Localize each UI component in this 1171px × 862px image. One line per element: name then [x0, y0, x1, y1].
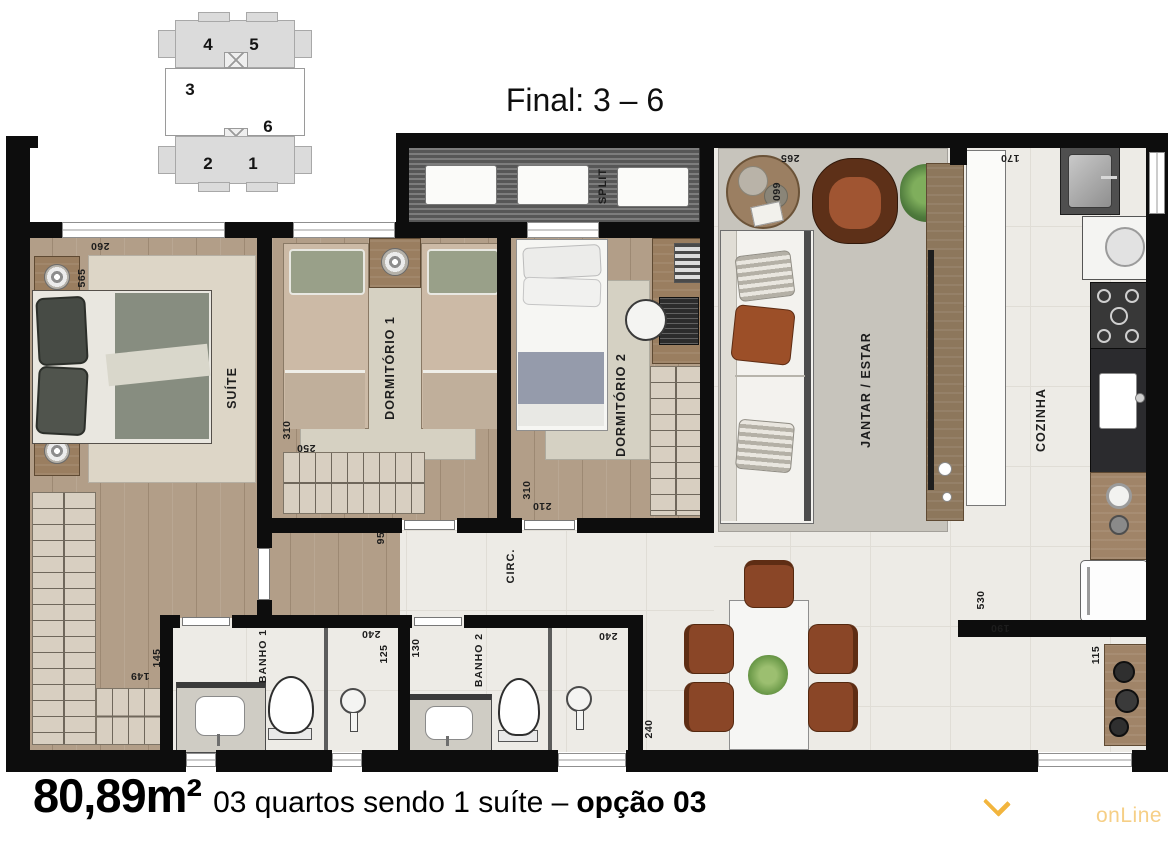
dorm2-wardrobe	[650, 366, 702, 516]
burner-2	[1125, 289, 1139, 303]
tv-vase-2	[942, 492, 952, 502]
door-dorm1	[404, 520, 455, 530]
label-banho2: BANHO 2	[473, 633, 485, 687]
wall-bedrooms-bottom-c	[577, 518, 714, 533]
window-vent-2	[332, 753, 362, 767]
dim-dining-width: 240	[643, 719, 655, 738]
banho2-toilet	[496, 678, 538, 740]
wall-top-right-outer	[710, 133, 1168, 148]
dorm1-bed-right-pillow	[427, 249, 499, 295]
window-dorm2	[527, 222, 599, 238]
dorm1-bed-right-blanket	[423, 370, 499, 429]
suite-closet-vertical	[32, 492, 96, 745]
sofa-seam	[735, 375, 805, 377]
door-banho1	[182, 617, 230, 626]
dining-chair-right-1	[808, 624, 858, 674]
dim-kitchen-width: 170	[1000, 152, 1019, 164]
burner-4	[1125, 329, 1139, 343]
door-banho2	[414, 617, 462, 626]
wall-living-kitchen-stub	[950, 133, 967, 165]
label-circ: CIRC.	[505, 549, 517, 584]
dim-dorm2-width: 210	[532, 500, 551, 512]
armchair-seat	[829, 177, 881, 229]
kitchen-faucet	[1135, 393, 1145, 403]
kitchen-counter-left	[966, 150, 1006, 506]
fridge-handle	[1087, 567, 1090, 615]
banho2-basin	[425, 706, 473, 740]
wall-suite-hall-a	[257, 532, 272, 548]
wall-split-top	[396, 133, 712, 148]
burner-3	[1097, 329, 1111, 343]
dorm1-lamp	[381, 248, 409, 276]
label-dorm2: DORMITÓRIO 2	[614, 353, 628, 457]
tank-faucet	[1101, 176, 1117, 179]
wall-banho-top-c	[464, 615, 640, 628]
coffee-counter	[1104, 644, 1148, 746]
dim-living-width: 265	[780, 152, 799, 164]
banho2-shower-partition	[548, 628, 552, 750]
ac-condenser-3	[617, 167, 689, 207]
dining-chair-left-1	[684, 624, 734, 674]
dorm1-bed-right	[421, 243, 503, 429]
wall-suite-dorm1	[257, 222, 272, 532]
floor-plan: SUÍTE DORMITÓRIO 1 DORMITÓRIO 2 SPLIT JA…	[0, 0, 1171, 862]
banho1-shower-stem	[350, 712, 358, 732]
floorplan-page: 4 5 3 6 2 1 Final: 3 – 6	[0, 0, 1171, 862]
wall-bedrooms-top-c	[599, 222, 714, 238]
window-vent-1	[186, 753, 216, 767]
dim-dorm1-width: 250	[296, 442, 315, 454]
laundry-tank	[1060, 147, 1120, 215]
dim-suite-depth: 565	[76, 268, 88, 287]
wall-topleft-corner	[6, 136, 38, 148]
tv-screen	[928, 250, 934, 490]
dim-banho1-width: 125	[378, 644, 390, 663]
dim-closet-b: 145	[151, 648, 163, 667]
cabinet-faucet	[1109, 515, 1129, 535]
banho2-shower-stem	[576, 710, 584, 730]
door-suite	[258, 548, 270, 600]
wall-split-left	[396, 146, 409, 224]
living-armchair	[812, 158, 898, 244]
dim-banho1-depth: 240	[361, 628, 380, 640]
dorm2-blanket	[518, 352, 604, 404]
dim-closet-a: 149	[130, 670, 149, 682]
window-suite	[62, 222, 225, 238]
sofa-pillow-striped-1	[734, 250, 795, 302]
plan-option: opção 03	[576, 786, 706, 820]
dim-banho2-depth: 240	[598, 630, 617, 642]
label-banho1: BANHO 1	[257, 629, 269, 683]
door-dorm2	[524, 520, 575, 530]
sofa-front-edge	[804, 231, 811, 521]
wall-banho1-banho2	[398, 615, 410, 752]
label-dorm1: DORMITÓRIO 1	[383, 316, 397, 420]
suite-closet-horizontal	[96, 688, 164, 745]
dining-chair-head	[744, 560, 794, 608]
watermark-text: onLine	[1096, 804, 1162, 828]
banho1-counter	[176, 682, 266, 753]
banho1-toilet-bowl	[268, 676, 314, 734]
area-value: 80,89m²	[33, 768, 201, 823]
wall-banho2-dining	[628, 615, 643, 752]
wall-dorm1-dorm2	[497, 222, 511, 518]
banho1-toilet	[266, 676, 312, 738]
wall-suite-top-a	[6, 222, 62, 238]
ac-condenser-1	[425, 165, 497, 205]
banho1-basin	[195, 696, 245, 736]
suite-lamp-top	[44, 264, 70, 290]
dim-dorm2-depth: 310	[521, 480, 533, 499]
cabinet-round-sink	[1106, 483, 1132, 509]
burner-1	[1097, 289, 1111, 303]
dim-banho2-width: 130	[410, 638, 422, 657]
kitchen-sink	[1099, 373, 1137, 429]
living-sofa	[720, 230, 814, 524]
wall-right-outer	[1146, 133, 1168, 772]
fridge	[1080, 560, 1148, 622]
dorm1-wardrobe	[283, 452, 425, 514]
ac-condenser-2	[517, 165, 589, 205]
wall-closet-banho1	[160, 615, 173, 752]
wall-bedrooms-bottom-b	[457, 518, 522, 533]
dorm2-bed	[516, 239, 608, 431]
side-table-decor-1	[738, 166, 768, 196]
counter-item-2	[1115, 689, 1139, 713]
wall-dorm2-living	[700, 133, 714, 532]
banho2-toilet-bowl	[498, 678, 540, 736]
window-kitchen	[1149, 152, 1165, 214]
dorm2-pillow-2	[523, 277, 602, 308]
dorm2-desk-chair	[625, 299, 667, 341]
dorm2-pillow-1	[522, 244, 602, 280]
label-kitchen: COZINHA	[1034, 388, 1048, 452]
washing-machine	[1082, 216, 1148, 280]
window-bottom-right	[1038, 753, 1132, 767]
counter-item-3	[1109, 717, 1129, 737]
dim-living-depth: 660	[770, 182, 782, 201]
dim-kitchen-pass: 190	[990, 622, 1009, 634]
dim-dorm1-depth: 310	[281, 420, 293, 439]
dim-counter-depth: 115	[1090, 646, 1102, 664]
footer: 80,89m² 03 quartos sendo 1 suíte – opção…	[33, 768, 706, 823]
dining-chair-left-2	[684, 682, 734, 732]
sofa-pillow-leather	[730, 304, 796, 366]
wall-kitchen-bottom	[958, 620, 1148, 637]
window-dorm1	[293, 222, 395, 238]
dim-suite-width: 260	[90, 240, 109, 252]
window-banho2	[558, 753, 626, 767]
tv-vase-1	[938, 462, 952, 476]
wall-bedrooms-top-a	[273, 222, 293, 238]
sofa-pillow-striped-2	[735, 419, 795, 474]
dim-kitchen-depth: 530	[975, 590, 987, 609]
banho2-faucet	[446, 736, 449, 746]
dorm1-bed-left	[283, 243, 369, 429]
label-suite: SUÍTE	[225, 367, 239, 409]
banho1-shower-partition	[324, 628, 328, 750]
suite-pillow-2	[35, 366, 88, 437]
label-split: SPLIT	[597, 168, 609, 204]
banho2-counter	[408, 694, 492, 753]
banho1-shower-head	[340, 688, 366, 714]
wall-bottom-e	[1132, 750, 1168, 772]
dorm2-blanket-foot	[518, 404, 604, 426]
suite-pillow-1	[35, 296, 88, 367]
dim-hall-width: 95	[375, 532, 387, 545]
banho1-faucet	[217, 734, 220, 746]
suite-bed	[32, 290, 212, 444]
burner-center	[1110, 307, 1128, 325]
plan-description: 03 quartos sendo 1 suíte –	[213, 786, 568, 820]
dorm1-bed-left-blanket	[285, 370, 365, 429]
kitchen-cabinet-lower	[1090, 472, 1148, 560]
stove	[1090, 282, 1150, 350]
counter-item-1	[1113, 661, 1135, 683]
banho2-shower-head	[566, 686, 592, 712]
wall-banho-top-b	[232, 615, 412, 628]
label-living: JANTAR / ESTAR	[859, 332, 873, 448]
kitchen-granite-counter	[1090, 348, 1150, 474]
washer-door	[1105, 227, 1145, 267]
tank-basin	[1068, 154, 1112, 208]
dining-chair-right-2	[808, 682, 858, 732]
dorm1-bed-left-pillow	[289, 249, 365, 295]
